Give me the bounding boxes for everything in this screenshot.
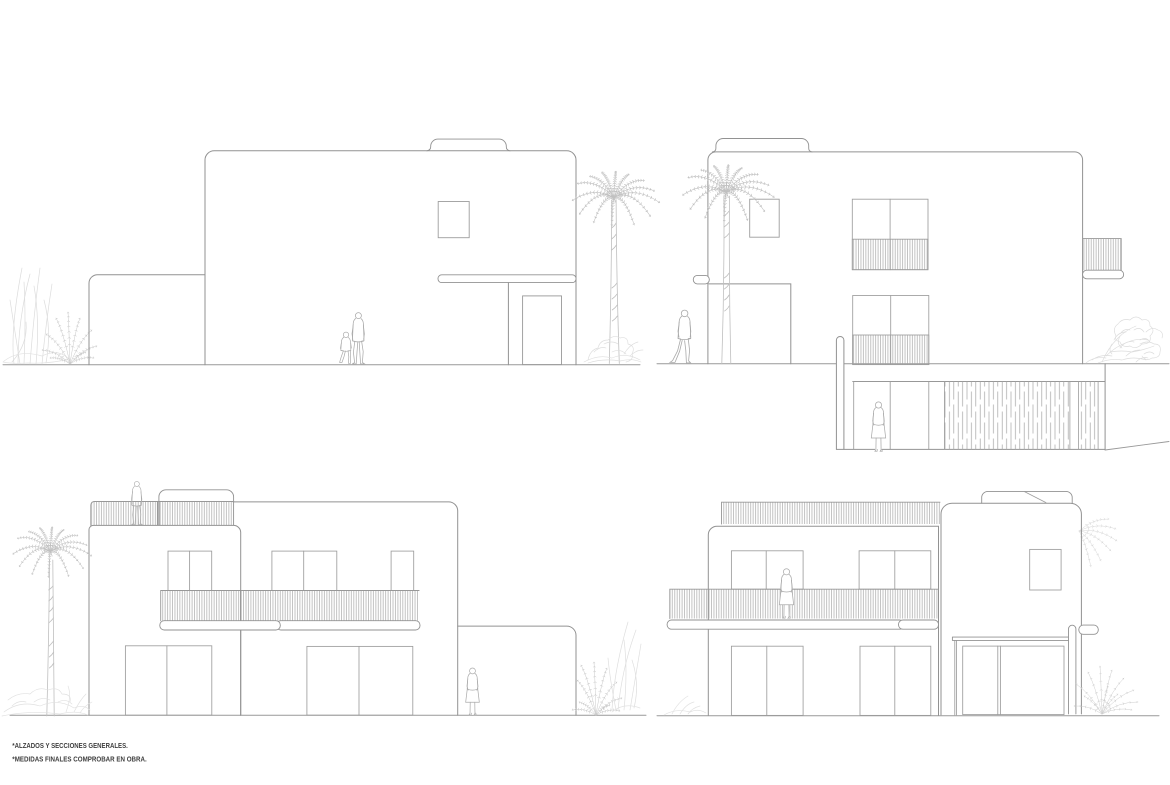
svg-text:*ALZADOS Y SECCIONES GENERALES: *ALZADOS Y SECCIONES GENERALES. — [12, 741, 128, 750]
svg-text:*MEDIDAS FINALES COMPROBAR EN: *MEDIDAS FINALES COMPROBAR EN OBRA. — [12, 755, 146, 764]
